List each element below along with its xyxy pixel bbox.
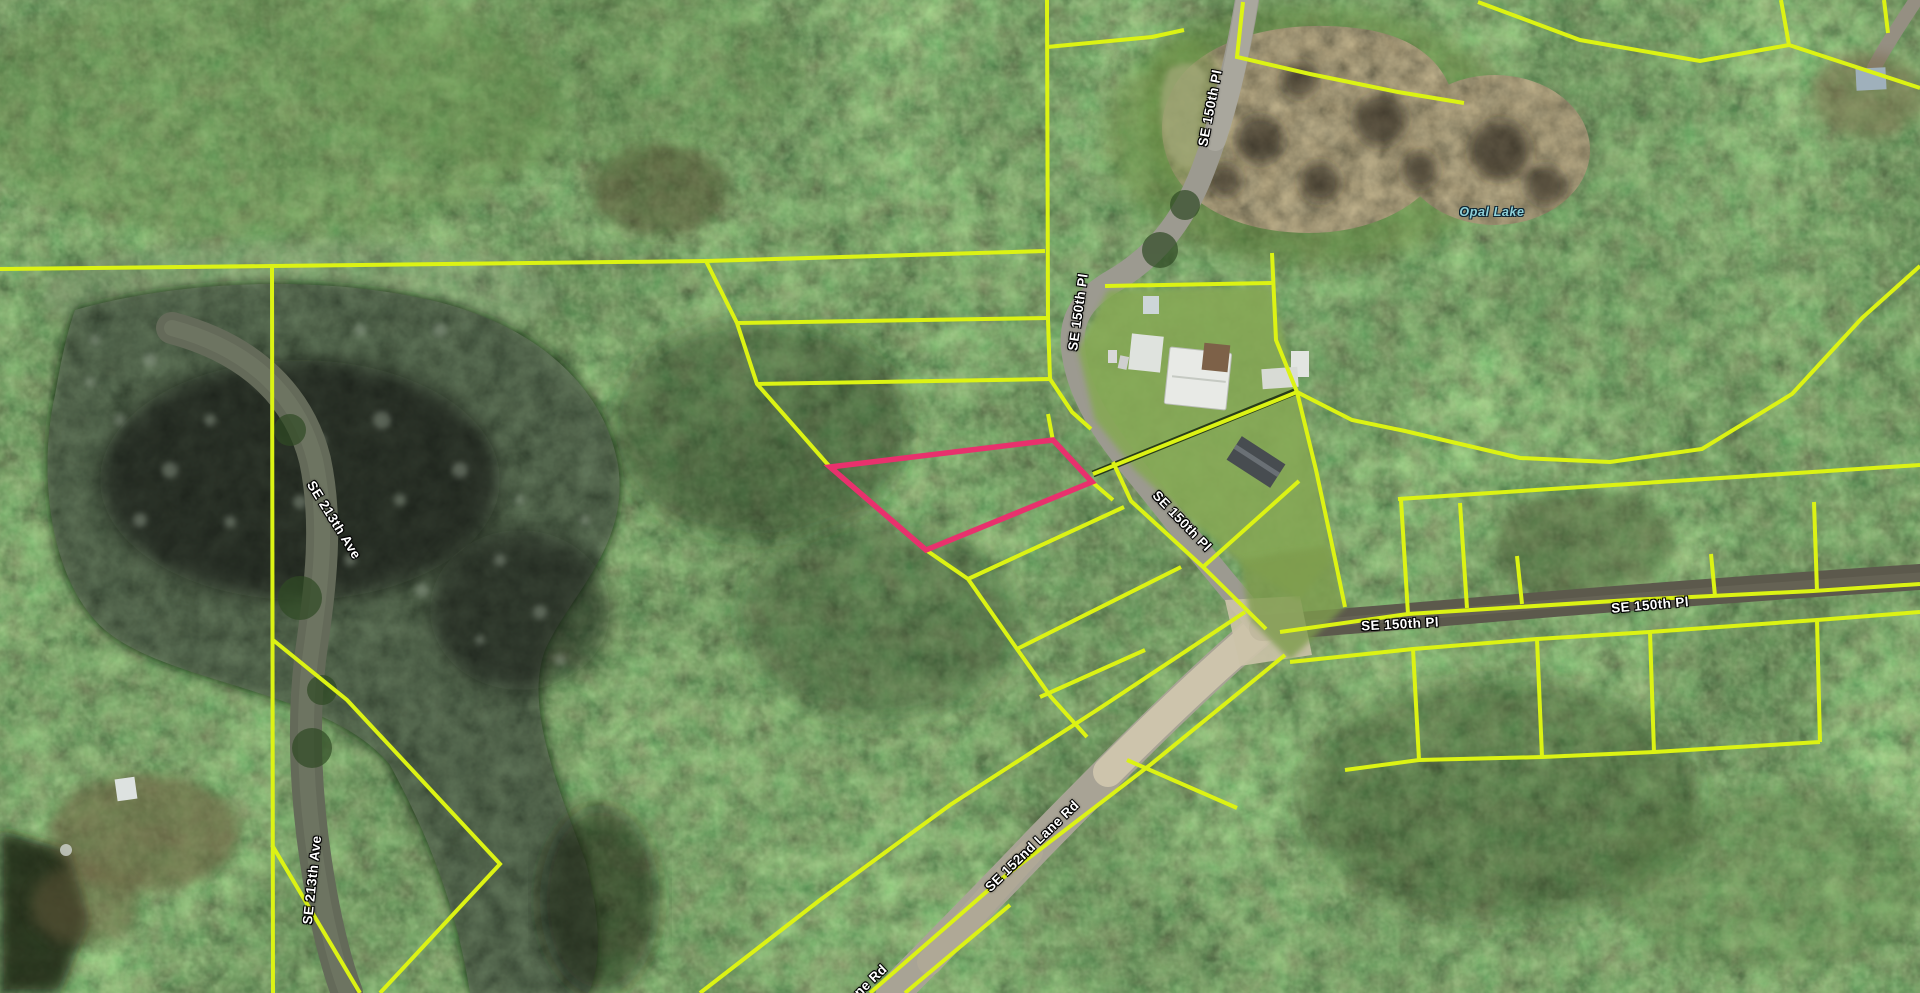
map-canvas <box>0 0 1920 993</box>
parcel-line <box>272 266 273 993</box>
satellite-imagery-layer <box>0 0 1920 993</box>
building-brown-roof <box>1202 343 1231 373</box>
building-greenhouse <box>1143 296 1159 314</box>
map-viewport[interactable]: SE 150th PlSE 150th PlSE 150th PlSE 150t… <box>0 0 1920 993</box>
building-small-shed <box>1128 333 1164 372</box>
vehicle <box>1108 350 1117 363</box>
building-bottom-left <box>115 777 138 802</box>
